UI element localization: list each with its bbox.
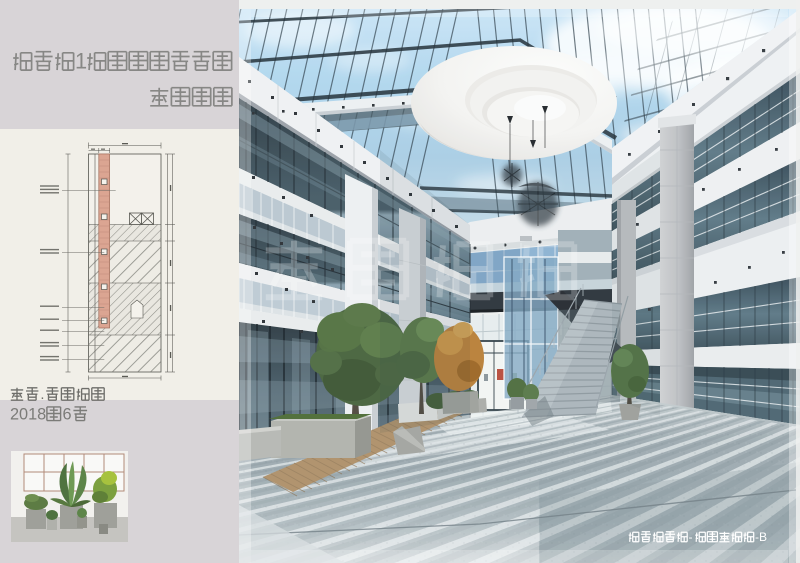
svg-text:2018: 2018 <box>10 405 46 423</box>
svg-text:6: 6 <box>63 405 72 423</box>
svg-text:-: - <box>689 530 693 544</box>
svg-text:-B: -B <box>755 530 767 544</box>
